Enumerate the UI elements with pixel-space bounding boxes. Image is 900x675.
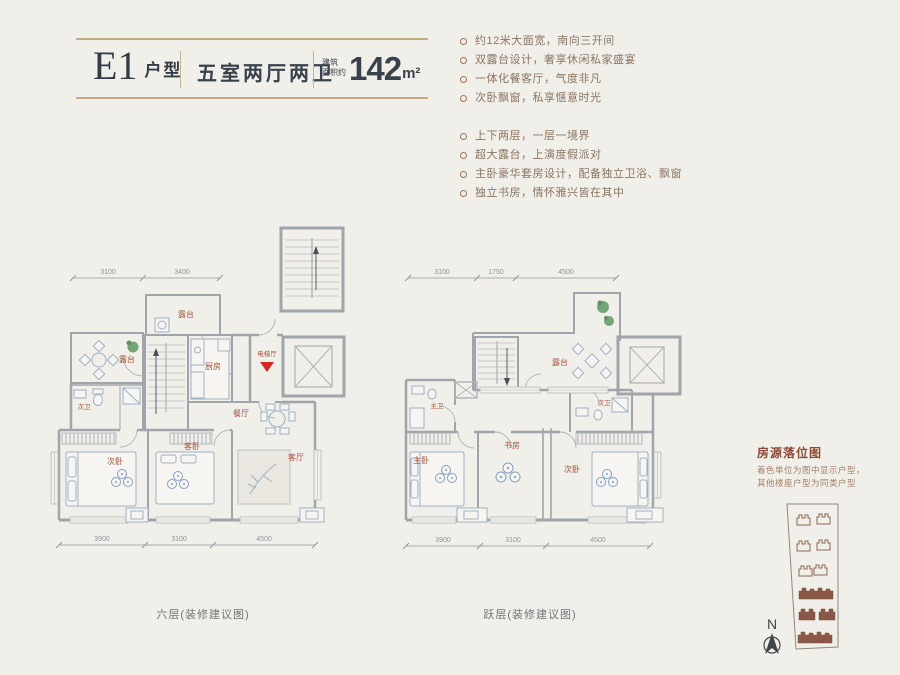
room-label-terrace-top: 露台	[178, 309, 194, 319]
dim-label: 3900	[94, 536, 110, 543]
entry-marker-icon	[260, 362, 274, 372]
compass-north-label: N	[767, 616, 777, 632]
room-label-bedroom2: 次卧	[564, 464, 580, 474]
caption-plan-right: 跃层(装修建议图)	[450, 606, 610, 622]
feature-item: 一体化餐客厅，气度非凡	[460, 71, 636, 90]
room-label-living: 客厅	[288, 452, 304, 462]
duplex-stair	[478, 341, 515, 386]
dimensions-bottom: 3900 3100 4500	[56, 536, 318, 548]
public-staircase	[281, 228, 343, 311]
header-bottom-rule	[76, 97, 428, 99]
feature-item: 主卧豪华套房设计，配备独立卫浴、飘窗	[460, 166, 682, 185]
dim-label: 1750	[488, 269, 504, 276]
feature-list-1: 约12米大面宽，南向三开间 双露台设计，奢享休闲私家盛宴 一体化餐客厅，气度非凡…	[460, 33, 636, 109]
furniture	[62, 318, 324, 522]
bullet-icon	[460, 57, 467, 64]
dim-label: 3400	[174, 269, 190, 276]
bullet-icon	[460, 152, 467, 159]
north-arrow-icon	[765, 633, 779, 654]
elevator-hall: 电梯厅	[250, 319, 283, 418]
floorplan-right: 露台 主卫 次卫 主卧 书房 次卧 3100 1750 4500 3900 31…	[390, 262, 690, 562]
room-label-terrace-left: 露台	[119, 354, 135, 364]
feature-item: 约12米大面宽，南向三开间	[460, 33, 636, 52]
unit-code-suffix: 户型	[144, 56, 182, 81]
bullet-icon	[460, 76, 467, 83]
highlighted-buildings	[798, 588, 835, 643]
rooms-summary: 五室两厅两卫	[197, 57, 335, 86]
feature-item: 超大露台，上演度假派对	[460, 147, 682, 166]
room-label-dining: 餐厅	[233, 409, 249, 418]
compass: N	[764, 616, 780, 654]
room-label-kitchen: 厨房	[205, 361, 221, 371]
sitemap-note-line1: 着色单位为图中显示户型，	[757, 464, 865, 476]
bullet-icon	[460, 133, 467, 140]
room-label-bath2: 次卫	[78, 402, 92, 411]
floorplan-left: 电梯厅	[48, 222, 370, 570]
feature-item: 次卧飘窗，私享惬意时光	[460, 90, 636, 109]
feature-text: 一体化餐客厅，气度非凡	[475, 71, 602, 87]
flower-decor	[496, 463, 520, 482]
bullet-icon	[460, 190, 467, 197]
sitemap-note-line2: 其他楼座户型为同类户型	[757, 477, 856, 489]
feature-item: 双露台设计，奢享休闲私家盛宴	[460, 52, 636, 71]
room-label-master-bath: 主卫	[431, 401, 445, 410]
caption-plan-left: 六层(装修建议图)	[123, 606, 283, 622]
area-number: 142	[349, 52, 401, 85]
dim-label: 3100	[505, 537, 521, 544]
area-prefix-line1: 建筑	[322, 58, 346, 68]
feature-text: 双露台设计，奢享休闲私家盛宴	[475, 52, 636, 68]
site-location-map: N	[745, 494, 895, 662]
unit-title: E1 户型	[93, 44, 182, 88]
header-divider-2	[313, 51, 314, 88]
dim-label: 3100	[100, 269, 116, 276]
room-label-terrace: 露台	[552, 357, 568, 367]
feature-text: 约12米大面宽，南向三开间	[475, 33, 615, 49]
room-label-guest-bedroom: 客卧	[184, 441, 200, 451]
dim-label: 3100	[434, 269, 450, 276]
room-label-master-bedroom: 主卧	[413, 455, 429, 465]
room-label-bedroom2: 次卧	[107, 456, 123, 466]
area-unit: m²	[402, 65, 420, 82]
dimensions-bottom: 3900 3100 4500	[403, 537, 653, 549]
dimensions-top: 3100 3400	[70, 269, 223, 281]
feature-text: 次卧飘窗，私享惬意时光	[475, 90, 602, 106]
header-divider-1	[180, 51, 181, 88]
bullet-icon	[460, 38, 467, 45]
header-top-rule	[76, 38, 428, 40]
bullet-icon	[460, 95, 467, 102]
feature-text: 独立书房，情怀雅兴皆在其中	[475, 185, 625, 201]
feature-list-2: 上下两层，一层一境界 超大露台，上演度假派对 主卧豪华套房设计，配备独立卫浴、飘…	[460, 128, 682, 204]
duplex-stair	[148, 343, 185, 414]
dim-label: 4500	[558, 269, 574, 276]
sitemap-title: 房源落位图	[757, 444, 822, 461]
dim-label: 4500	[256, 536, 272, 543]
unit-code: E1	[93, 44, 137, 88]
dimensions-top: 3100 1750 4500	[405, 269, 619, 281]
dim-label: 4500	[590, 537, 606, 544]
elevator-shaft	[283, 337, 344, 396]
room-label-elevator-hall: 电梯厅	[257, 349, 277, 358]
area-prefix-line2: 面积约	[322, 68, 346, 78]
bullet-icon	[460, 171, 467, 178]
dim-label: 3100	[171, 536, 187, 543]
room-label-bath2: 次卫	[598, 398, 612, 407]
area-prefix: 建筑 面积约	[322, 58, 346, 78]
dim-label: 3900	[435, 537, 451, 544]
feature-text: 上下两层，一层一境界	[475, 128, 590, 144]
feature-item: 独立书房，情怀雅兴皆在其中	[460, 185, 682, 204]
room-label-study: 书房	[504, 440, 520, 450]
feature-item: 上下两层，一层一境界	[460, 128, 682, 147]
feature-text: 主卧豪华套房设计，配备独立卫浴、飘窗	[475, 166, 682, 182]
other-buildings	[797, 514, 830, 576]
area-block: 建筑 面积约 142 m²	[322, 52, 420, 85]
feature-text: 超大露台，上演度假派对	[475, 147, 602, 163]
floorplan-brochure-page: E1 户型 五室两厅两卫 建筑 面积约 142 m² 约12米大面宽，南向三开间…	[0, 0, 900, 675]
